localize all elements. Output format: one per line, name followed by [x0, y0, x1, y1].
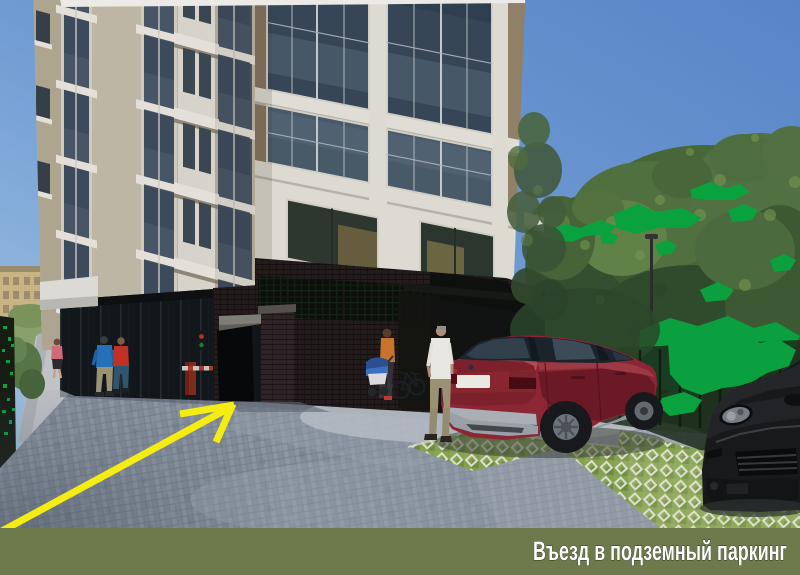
svg-text:Въезд в подземный паркинг: Въезд в подземный паркинг: [533, 536, 787, 566]
